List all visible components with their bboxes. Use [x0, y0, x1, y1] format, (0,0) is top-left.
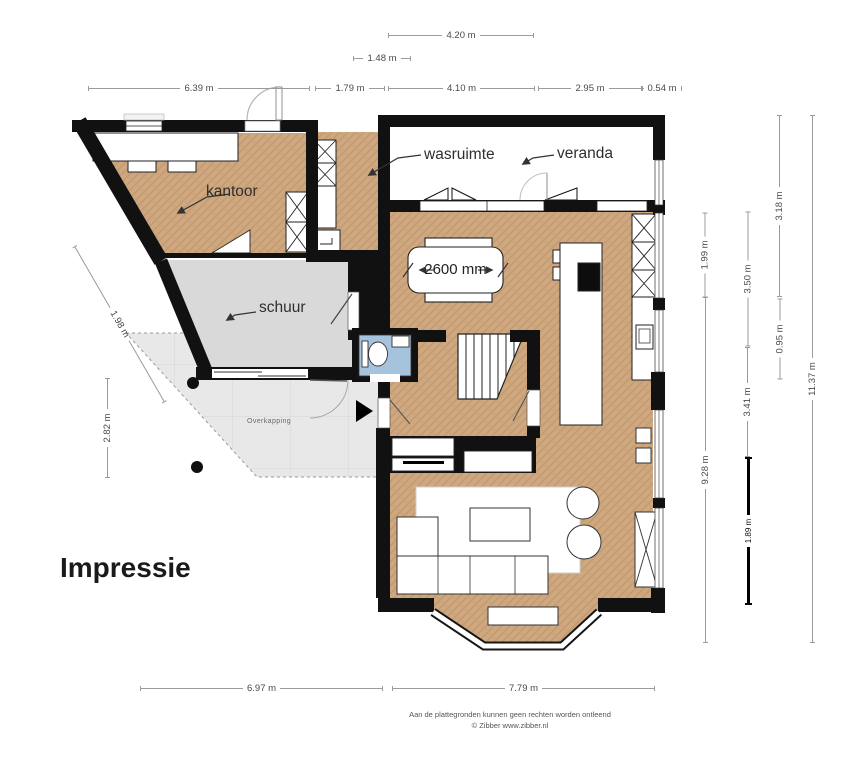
tv-wall [390, 436, 536, 473]
dimension: 1.48 m [353, 51, 411, 65]
tv [403, 461, 444, 464]
dimension: 3.50 m [741, 212, 755, 347]
washbasin [392, 336, 409, 347]
sofa [397, 556, 548, 594]
table-width-annotation: 2600 mm [413, 261, 498, 278]
dimension: 1.79 m [315, 81, 385, 95]
desk [93, 133, 238, 161]
kantoor-cabinet [286, 192, 308, 252]
room-label-schuur: schuur [259, 299, 306, 317]
dimension: 2.82 m [100, 378, 114, 478]
tall-cabinets [632, 214, 656, 297]
room-label-kantoor: kantoor [206, 183, 258, 201]
room-label-overkapping: Overkapping [247, 418, 291, 425]
dimension: 4.20 m [388, 28, 534, 42]
dimension: 6.39 m [88, 81, 310, 95]
dimension: 4.10 m [388, 81, 535, 95]
living-cabinet [635, 512, 657, 587]
disclaimer: Aan de plattegronden kunnen geen rechten… [330, 710, 690, 732]
room-label-veranda: veranda [557, 145, 613, 163]
dimension: 9.28 m [698, 297, 712, 643]
dimension: 3.18 m [772, 115, 786, 297]
room-label-wasruimte: wasruimte [424, 146, 495, 164]
toilet [369, 342, 388, 366]
side-table [567, 525, 601, 559]
side-table [567, 487, 599, 519]
dimension: 1.99 m [698, 213, 712, 298]
canopy-post [191, 461, 203, 473]
sofa-chaise [397, 517, 438, 561]
disclaimer-line2: © Zibber www.zibber.nl [330, 721, 690, 732]
dimension: 6.97 m [140, 681, 383, 695]
window-bench [488, 607, 558, 625]
dimension: 0.95 m [773, 299, 787, 380]
dimension: 2.95 m [538, 81, 642, 95]
dimension: 7.79 m [392, 681, 655, 695]
toilet-room [352, 328, 418, 382]
page-title: Impressie [60, 552, 191, 584]
disclaimer-line1: Aan de plattegronden kunnen geen rechten… [330, 710, 690, 721]
dimension: 0.54 m [642, 81, 682, 95]
chair [168, 161, 196, 172]
coffee-table [470, 508, 530, 541]
dimension-highlighted: 1.89 m [741, 457, 755, 605]
cooktop [578, 263, 600, 291]
floorplan-drawing [0, 0, 868, 768]
dimension: 3.41 m [740, 347, 754, 457]
dimension: 11.37 m [805, 115, 819, 643]
chair [128, 161, 156, 172]
floorplan-page: Impressie kantoor wasruimte veranda schu… [0, 0, 868, 768]
